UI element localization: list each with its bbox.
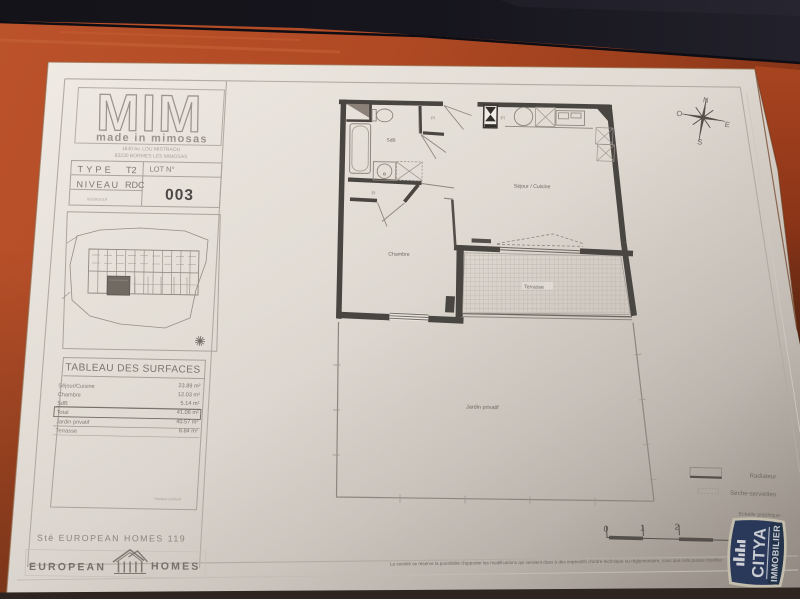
svg-text:83230 BORMES LES MIMOSAS: 83230 BORMES LES MIMOSAS bbox=[115, 153, 189, 160]
svg-text:Sté EUROPEAN HOMES 119: Sté EUROPEAN HOMES 119 bbox=[37, 533, 186, 544]
svg-text:Terrasse: Terrasse bbox=[56, 428, 78, 434]
svg-text:8.84 m²: 8.84 m² bbox=[179, 428, 198, 434]
svg-text:EUROPEAN: EUROPEAN bbox=[29, 561, 106, 573]
svg-text:LOT N°: LOT N° bbox=[149, 165, 174, 174]
svg-text:Terrasse: Terrasse bbox=[524, 284, 544, 290]
svg-text:0: 0 bbox=[603, 524, 608, 534]
svg-text:Hauteur plafond: Hauteur plafond bbox=[154, 497, 181, 502]
svg-text:made in mimosas: made in mimosas bbox=[96, 132, 208, 146]
svg-text:5.14 m²: 5.14 m² bbox=[180, 401, 199, 407]
svg-text:Pl: Pl bbox=[431, 116, 435, 121]
svg-text:1: 1 bbox=[640, 523, 645, 533]
svg-text:NIVEAU: NIVEAU bbox=[76, 179, 119, 190]
svg-text:T2: T2 bbox=[126, 165, 137, 175]
svg-text:23.89 m²: 23.89 m² bbox=[178, 383, 200, 389]
svg-text:Pl: Pl bbox=[371, 191, 375, 196]
svg-text:TYPE: TYPE bbox=[77, 164, 113, 175]
svg-text:Pl: Pl bbox=[500, 116, 504, 121]
svg-text:Séjour/Cuisine: Séjour/Cuisine bbox=[58, 383, 94, 390]
svg-text:Jardin privatif: Jardin privatif bbox=[56, 419, 90, 426]
svg-text:Radiateur: Radiateur bbox=[749, 473, 776, 481]
svg-text:Chambre: Chambre bbox=[58, 392, 81, 398]
svg-text:SdB: SdB bbox=[386, 138, 395, 144]
svg-text:RDC: RDC bbox=[125, 180, 145, 190]
svg-text:06/09/2019: 06/09/2019 bbox=[87, 197, 108, 202]
svg-text:Total: Total bbox=[57, 410, 69, 416]
svg-text:41.06 m²: 41.06 m² bbox=[177, 410, 199, 416]
svg-text:2: 2 bbox=[674, 522, 679, 532]
svg-text:003: 003 bbox=[165, 187, 194, 205]
svg-text:Chambre: Chambre bbox=[388, 252, 410, 258]
svg-text:40.57 m²: 40.57 m² bbox=[176, 419, 198, 425]
svg-text:Jardin privatif: Jardin privatif bbox=[466, 405, 499, 412]
svg-text:HOMES: HOMES bbox=[151, 561, 201, 573]
svg-text:1640 Av. LOU MISTRAOU: 1640 Av. LOU MISTRAOU bbox=[122, 146, 181, 153]
svg-text:Séjour / Cuisine: Séjour / Cuisine bbox=[514, 184, 551, 191]
svg-text:12.03 m²: 12.03 m² bbox=[178, 392, 200, 398]
